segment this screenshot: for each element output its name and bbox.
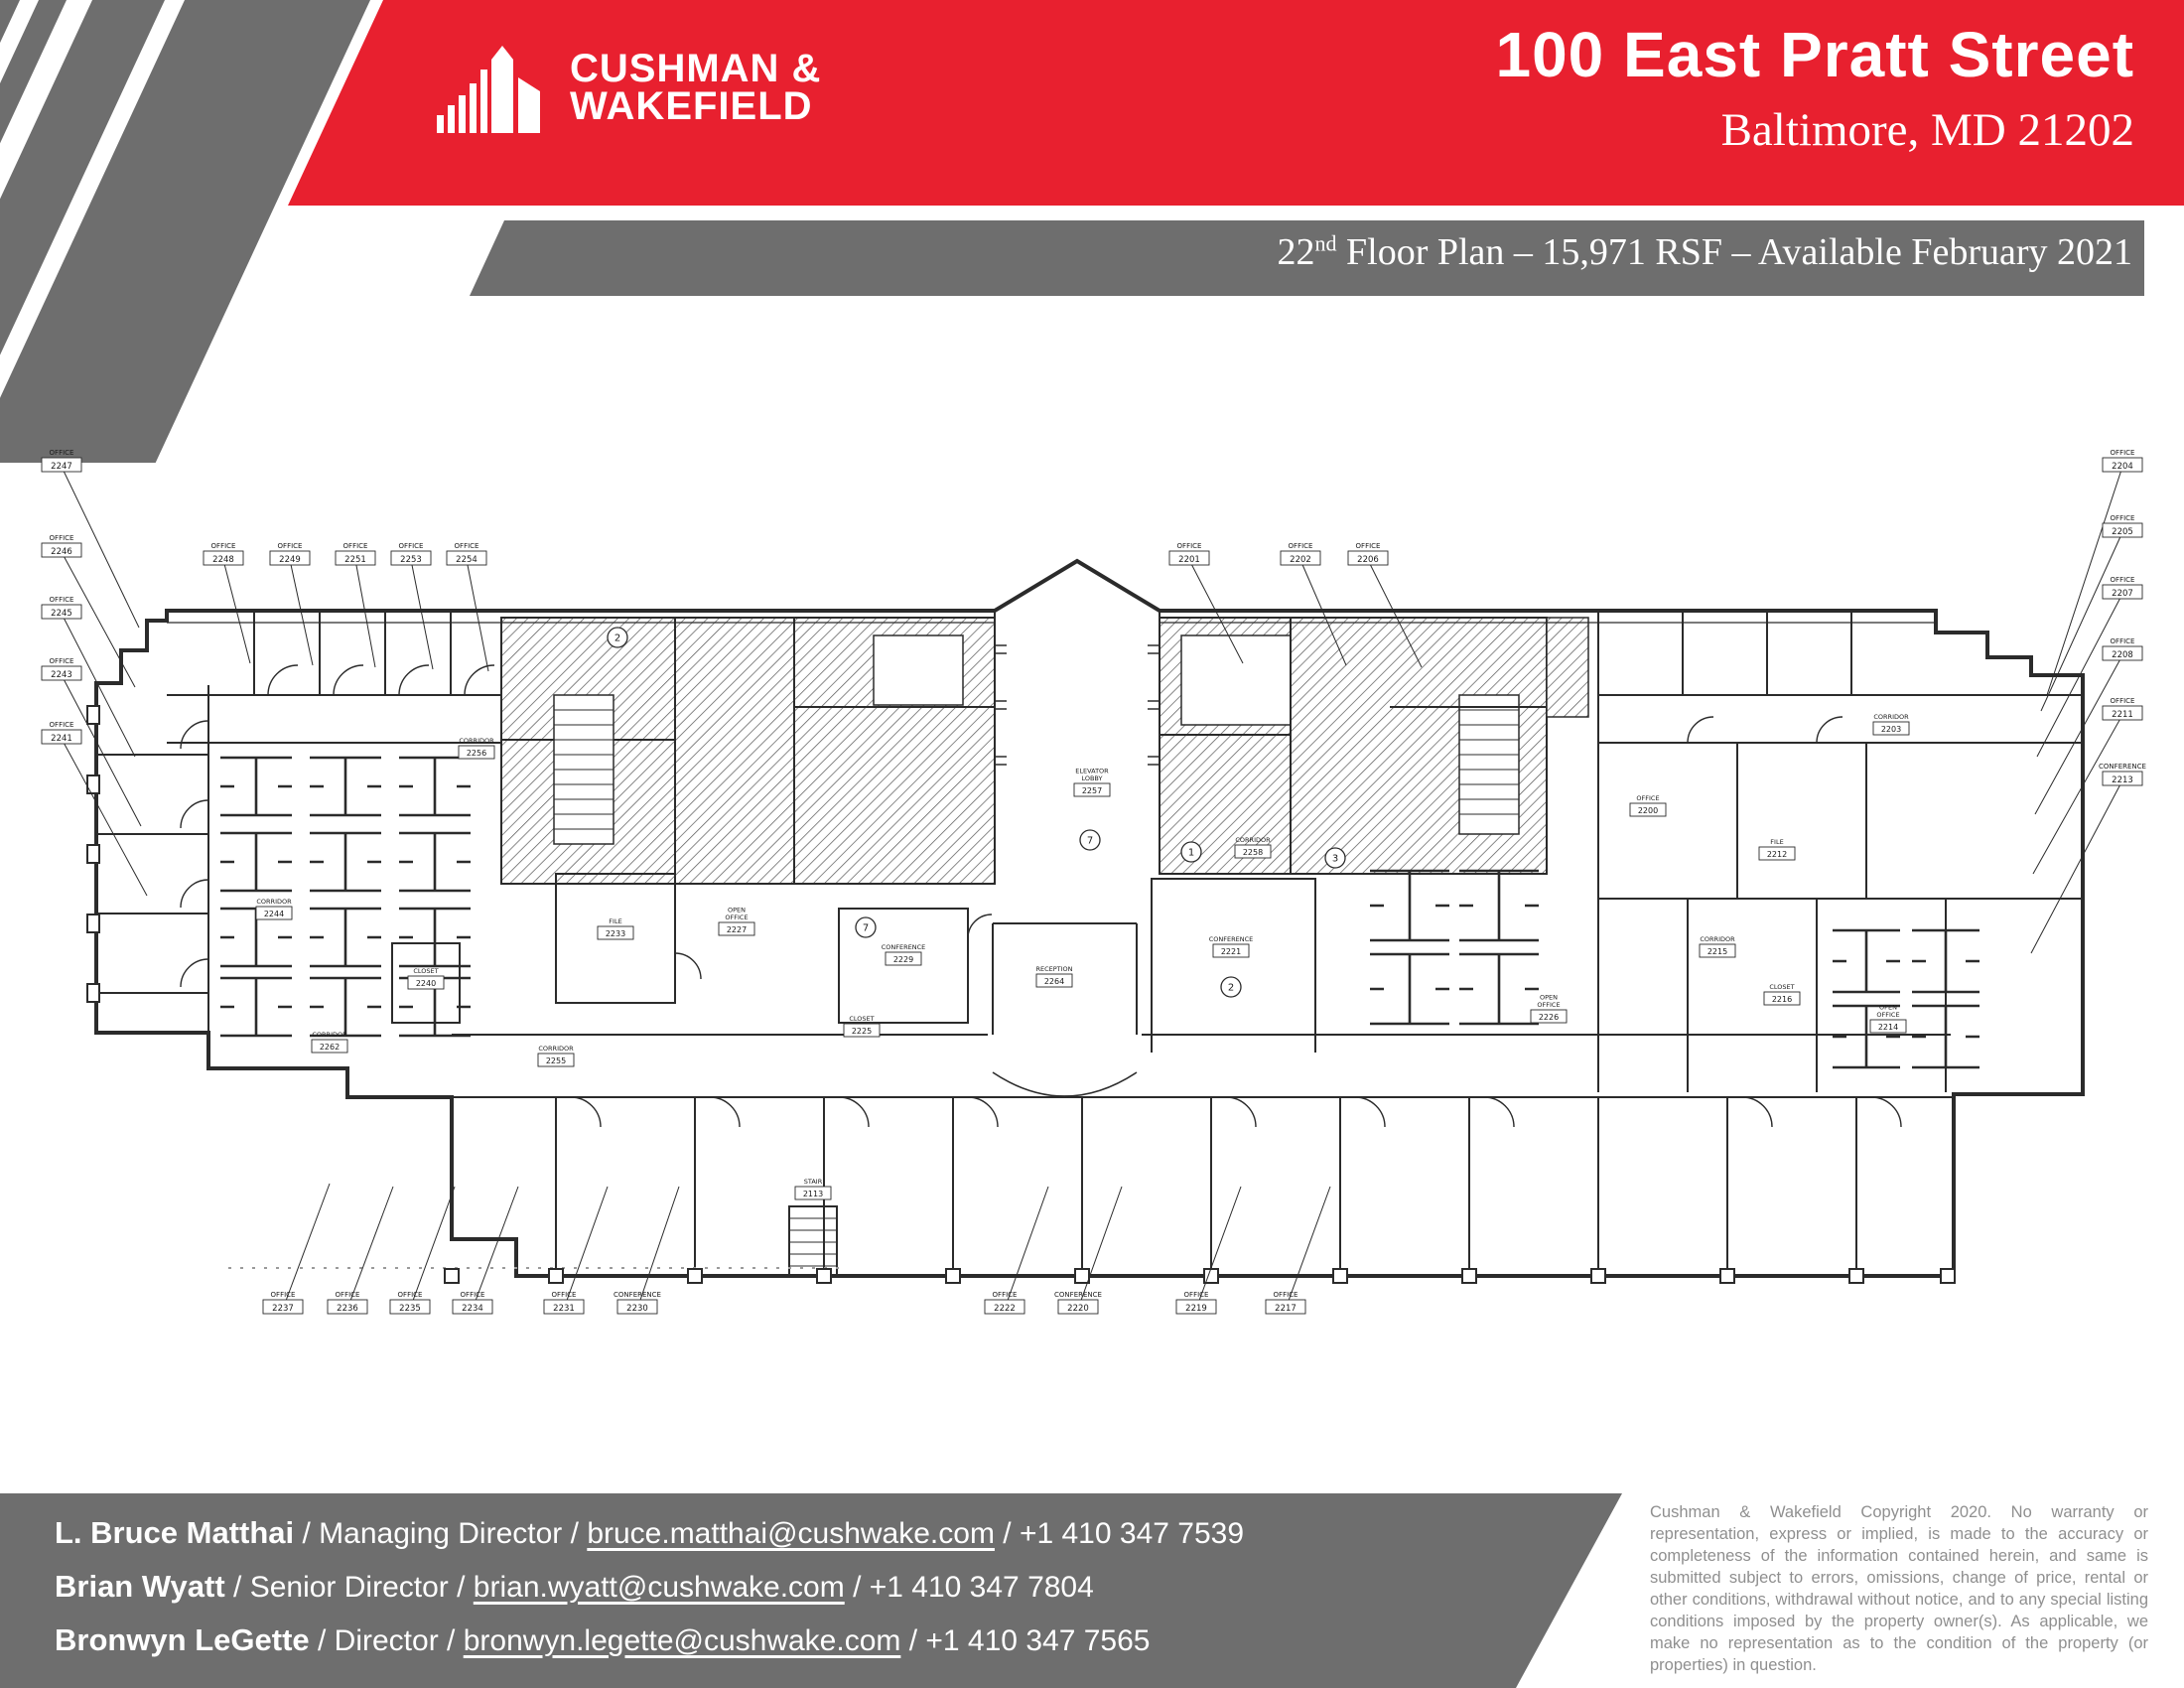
column-square bbox=[87, 845, 99, 863]
room-label-exterior: OFFICE2234 bbox=[453, 1187, 518, 1314]
room-label-interior: OPENOFFICE2214 bbox=[1870, 1004, 1906, 1034]
room-label-interior: CORRIDOR2258 bbox=[1235, 836, 1271, 858]
svg-text:OFFICE: OFFICE bbox=[398, 1291, 423, 1299]
svg-text:CORRIDOR: CORRIDOR bbox=[256, 898, 292, 906]
svg-text:2245: 2245 bbox=[51, 609, 72, 619]
room-label-interior: CLOSET2216 bbox=[1764, 983, 1800, 1005]
svg-text:OFFICE: OFFICE bbox=[50, 596, 74, 604]
room-labels: OFFICE2248OFFICE2249OFFICE2251OFFICE2253… bbox=[42, 449, 2146, 1314]
svg-text:CONFERENCE: CONFERENCE bbox=[1054, 1291, 1102, 1299]
separator: / bbox=[845, 1571, 870, 1604]
svg-text:2204: 2204 bbox=[2112, 462, 2133, 472]
svg-text:2243: 2243 bbox=[51, 670, 72, 680]
separator: / bbox=[310, 1624, 335, 1657]
svg-text:2202: 2202 bbox=[1290, 555, 1311, 565]
column-square bbox=[946, 1269, 960, 1283]
svg-text:FILE: FILE bbox=[609, 917, 621, 925]
separator: / bbox=[562, 1517, 587, 1550]
room-label-exterior: CONFERENCE2230 bbox=[614, 1187, 679, 1314]
svg-text:2212: 2212 bbox=[1767, 850, 1787, 859]
svg-text:2251: 2251 bbox=[344, 555, 366, 565]
workstation-clusters bbox=[220, 758, 1979, 1067]
svg-text:2230: 2230 bbox=[626, 1304, 648, 1314]
svg-text:OFFICE: OFFICE bbox=[2111, 449, 2135, 457]
svg-text:OFFICE: OFFICE bbox=[725, 914, 748, 921]
svg-text:CORRIDOR: CORRIDOR bbox=[1235, 836, 1271, 844]
column-square bbox=[1849, 1269, 1863, 1283]
svg-text:2258: 2258 bbox=[1243, 848, 1263, 857]
svg-text:OFFICE: OFFICE bbox=[50, 721, 74, 729]
svg-text:2: 2 bbox=[614, 633, 620, 644]
room-label-interior: OPENOFFICE2226 bbox=[1531, 994, 1567, 1024]
svg-text:OFFICE: OFFICE bbox=[1184, 1291, 1209, 1299]
room-label-exterior: OFFICE2254 bbox=[447, 542, 488, 671]
svg-text:OFFICE: OFFICE bbox=[1876, 1011, 1899, 1019]
note-circle: 3 bbox=[1325, 848, 1345, 868]
svg-text:2241: 2241 bbox=[51, 734, 72, 744]
footer-contact-band: L. Bruce Matthai / Managing Director / b… bbox=[0, 1493, 1622, 1688]
column-square bbox=[1333, 1269, 1347, 1283]
svg-text:2217: 2217 bbox=[1275, 1304, 1297, 1314]
svg-text:2264: 2264 bbox=[1044, 977, 1064, 986]
room-label-exterior: OFFICE2205 bbox=[2041, 514, 2142, 711]
contact-name: Brian Wyatt bbox=[55, 1569, 225, 1604]
column-square bbox=[87, 706, 99, 724]
room-label-interior: CONFERENCE2221 bbox=[1209, 935, 1254, 957]
svg-text:2208: 2208 bbox=[2112, 650, 2133, 660]
room-label-exterior: OFFICE2248 bbox=[204, 542, 250, 663]
separator: / bbox=[449, 1571, 474, 1604]
svg-text:2216: 2216 bbox=[1772, 995, 1792, 1004]
room-label-exterior: OFFICE2217 bbox=[1266, 1187, 1330, 1314]
svg-text:OFFICE: OFFICE bbox=[1636, 794, 1659, 802]
svg-text:OFFICE: OFFICE bbox=[1537, 1001, 1560, 1009]
separator: / bbox=[995, 1517, 1020, 1550]
svg-text:OFFICE: OFFICE bbox=[993, 1291, 1018, 1299]
column-square bbox=[1591, 1269, 1605, 1283]
column-square bbox=[549, 1269, 563, 1283]
room-label-exterior: OFFICE2219 bbox=[1176, 1187, 1241, 1314]
separator: / bbox=[225, 1571, 250, 1604]
svg-text:2247: 2247 bbox=[51, 462, 72, 472]
room-label-exterior: OFFICE2251 bbox=[336, 542, 375, 667]
svg-text:7: 7 bbox=[1087, 836, 1093, 847]
room-label-interior: CORRIDOR2256 bbox=[459, 737, 494, 759]
room-label-exterior: OFFICE2208 bbox=[2035, 637, 2142, 814]
svg-text:2229: 2229 bbox=[893, 955, 913, 964]
svg-text:OFFICE: OFFICE bbox=[1289, 542, 1313, 550]
hatched-core-zones bbox=[501, 618, 1588, 884]
svg-text:2240: 2240 bbox=[416, 979, 436, 988]
svg-text:OFFICE: OFFICE bbox=[336, 1291, 360, 1299]
column-square bbox=[87, 914, 99, 932]
room-label-interior: STAIR2113 bbox=[795, 1178, 831, 1199]
svg-text:CORRIDOR: CORRIDOR bbox=[538, 1045, 574, 1053]
svg-text:2211: 2211 bbox=[2112, 710, 2133, 720]
room-label-exterior: CONFERENCE2213 bbox=[2031, 763, 2146, 953]
svg-text:OFFICE: OFFICE bbox=[1356, 542, 1381, 550]
column-square bbox=[1720, 1269, 1734, 1283]
svg-text:OFFICE: OFFICE bbox=[211, 542, 236, 550]
svg-text:2231: 2231 bbox=[553, 1304, 575, 1314]
svg-text:2257: 2257 bbox=[1082, 786, 1102, 795]
contact-name: Bronwyn LeGette bbox=[55, 1622, 310, 1657]
room-label-interior: CORRIDOR2244 bbox=[256, 898, 292, 919]
column-squares bbox=[87, 706, 1955, 1283]
svg-text:2219: 2219 bbox=[1185, 1304, 1207, 1314]
svg-text:OFFICE: OFFICE bbox=[399, 542, 424, 550]
contact-role: Senior Director bbox=[250, 1571, 449, 1604]
svg-text:7: 7 bbox=[863, 923, 869, 934]
svg-text:2220: 2220 bbox=[1067, 1304, 1089, 1314]
svg-text:LOBBY: LOBBY bbox=[1081, 774, 1102, 782]
contact-row: L. Bruce Matthai / Managing Director / b… bbox=[55, 1515, 1244, 1551]
svg-text:2253: 2253 bbox=[400, 555, 422, 565]
room-label-exterior: OFFICE2231 bbox=[544, 1187, 608, 1314]
svg-text:2233: 2233 bbox=[606, 929, 625, 938]
room-label-exterior: OFFICE2236 bbox=[328, 1187, 393, 1314]
svg-text:CONFERENCE: CONFERENCE bbox=[882, 943, 926, 951]
svg-text:2213: 2213 bbox=[2112, 775, 2133, 785]
column-square bbox=[87, 775, 99, 793]
copyright-disclaimer: Cushman & Wakefield Copyright 2020. No w… bbox=[1650, 1501, 2148, 1676]
room-label-interior: OFFICE2200 bbox=[1630, 794, 1666, 816]
svg-text:OFFICE: OFFICE bbox=[50, 449, 74, 457]
room-label-exterior: OFFICE2249 bbox=[270, 542, 313, 665]
room-label-interior: CORRIDOR2215 bbox=[1700, 935, 1735, 957]
contact-row: Brian Wyatt / Senior Director / brian.wy… bbox=[55, 1569, 1094, 1605]
column-square bbox=[1462, 1269, 1476, 1283]
room-label-interior: CORRIDOR2203 bbox=[1873, 713, 1909, 735]
contact-phone: +1 410 347 7565 bbox=[925, 1624, 1150, 1657]
door-arcs bbox=[181, 665, 1901, 1127]
column-square bbox=[1075, 1269, 1089, 1283]
room-label-interior: CORRIDOR2255 bbox=[538, 1045, 574, 1066]
svg-text:STAIR: STAIR bbox=[804, 1178, 823, 1186]
room-label-interior: RECEPTION2264 bbox=[1035, 965, 1072, 987]
contact-role: Managing Director bbox=[319, 1517, 562, 1550]
svg-text:2203: 2203 bbox=[1881, 725, 1901, 734]
svg-text:CORRIDOR: CORRIDOR bbox=[1873, 713, 1909, 721]
room-label-interior: FILE2212 bbox=[1759, 838, 1795, 860]
column-square bbox=[1941, 1269, 1955, 1283]
svg-text:2254: 2254 bbox=[456, 555, 478, 565]
svg-text:CONFERENCE: CONFERENCE bbox=[614, 1291, 661, 1299]
note-circle: 7 bbox=[1080, 830, 1100, 850]
svg-text:CORRIDOR: CORRIDOR bbox=[459, 737, 494, 745]
flyer-page: CUSHMAN & WAKEFIELD 100 East Pratt Stree… bbox=[0, 0, 2184, 1688]
svg-text:FILE: FILE bbox=[1770, 838, 1783, 846]
svg-text:CLOSET: CLOSET bbox=[849, 1015, 874, 1023]
svg-text:2225: 2225 bbox=[852, 1027, 872, 1036]
svg-text:OFFICE: OFFICE bbox=[1177, 542, 1202, 550]
contact-phone: +1 410 347 7804 bbox=[870, 1571, 1094, 1604]
svg-text:OFFICE: OFFICE bbox=[2111, 514, 2135, 522]
svg-text:RECEPTION: RECEPTION bbox=[1035, 965, 1072, 973]
svg-text:2113: 2113 bbox=[803, 1190, 823, 1198]
svg-text:CONFERENCE: CONFERENCE bbox=[2099, 763, 2146, 771]
svg-text:2226: 2226 bbox=[1539, 1013, 1559, 1022]
svg-text:2236: 2236 bbox=[337, 1304, 358, 1314]
room-label-interior: CORRIDOR2262 bbox=[312, 1031, 347, 1053]
separator: / bbox=[439, 1624, 464, 1657]
svg-text:2206: 2206 bbox=[1357, 555, 1379, 565]
contact-role: Director bbox=[335, 1624, 439, 1657]
contact-phone: +1 410 347 7539 bbox=[1020, 1517, 1244, 1550]
svg-text:OFFICE: OFFICE bbox=[2111, 576, 2135, 584]
contact-email[interactable]: bruce.matthai@cushwake.com bbox=[587, 1517, 995, 1550]
room-label-exterior: OFFICE2253 bbox=[391, 542, 433, 669]
svg-text:2205: 2205 bbox=[2112, 527, 2133, 537]
svg-text:2246: 2246 bbox=[51, 547, 72, 557]
svg-text:2244: 2244 bbox=[264, 910, 284, 918]
svg-text:CLOSET: CLOSET bbox=[1769, 983, 1794, 991]
column-square bbox=[87, 984, 99, 1002]
svg-text:CORRIDOR: CORRIDOR bbox=[312, 1031, 347, 1039]
svg-text:2215: 2215 bbox=[1707, 947, 1727, 956]
svg-text:2234: 2234 bbox=[462, 1304, 483, 1314]
svg-text:OFFICE: OFFICE bbox=[455, 542, 479, 550]
svg-text:OFFICE: OFFICE bbox=[552, 1291, 577, 1299]
svg-text:CONFERENCE: CONFERENCE bbox=[1209, 935, 1254, 943]
svg-text:OFFICE: OFFICE bbox=[461, 1291, 485, 1299]
svg-text:OFFICE: OFFICE bbox=[1274, 1291, 1298, 1299]
column-square bbox=[817, 1269, 831, 1283]
svg-text:1: 1 bbox=[1188, 848, 1194, 859]
svg-text:OFFICE: OFFICE bbox=[343, 542, 368, 550]
interior-walls bbox=[96, 611, 2083, 1276]
svg-text:OFFICE: OFFICE bbox=[2111, 697, 2135, 705]
separator: / bbox=[900, 1624, 925, 1657]
column-square bbox=[688, 1269, 702, 1283]
svg-text:2262: 2262 bbox=[320, 1043, 340, 1052]
room-label-exterior: OFFICE2222 bbox=[985, 1187, 1048, 1314]
room-label-interior: CLOSET2225 bbox=[844, 1015, 880, 1037]
contact-row: Bronwyn LeGette / Director / bronwyn.leg… bbox=[55, 1622, 1150, 1658]
svg-text:2200: 2200 bbox=[1638, 806, 1658, 815]
svg-text:2221: 2221 bbox=[1221, 947, 1241, 956]
building-outline bbox=[96, 561, 2083, 1276]
contact-email[interactable]: bronwyn.legette@cushwake.com bbox=[464, 1624, 901, 1657]
svg-text:2222: 2222 bbox=[994, 1304, 1016, 1314]
note-circle: 7 bbox=[856, 917, 876, 937]
room-label-exterior: OFFICE2237 bbox=[263, 1184, 330, 1314]
room-label-interior: CLOSET2240 bbox=[408, 967, 444, 989]
svg-text:2237: 2237 bbox=[272, 1304, 294, 1314]
contact-name: L. Bruce Matthai bbox=[55, 1515, 294, 1550]
svg-text:2207: 2207 bbox=[2112, 589, 2133, 599]
svg-text:OFFICE: OFFICE bbox=[50, 534, 74, 542]
svg-text:CLOSET: CLOSET bbox=[413, 967, 438, 975]
note-circle: 2 bbox=[608, 628, 627, 647]
svg-text:2: 2 bbox=[1228, 983, 1234, 994]
svg-text:2201: 2201 bbox=[1178, 555, 1200, 565]
floor-plan-drawing: OFFICE2248OFFICE2249OFFICE2251OFFICE2253… bbox=[0, 0, 2184, 1688]
svg-text:2214: 2214 bbox=[1878, 1023, 1898, 1032]
svg-text:CORRIDOR: CORRIDOR bbox=[1700, 935, 1735, 943]
svg-text:2227: 2227 bbox=[727, 925, 747, 934]
svg-text:OFFICE: OFFICE bbox=[278, 542, 303, 550]
room-label-interior: OPENOFFICE2227 bbox=[719, 907, 754, 936]
column-square bbox=[445, 1269, 459, 1283]
note-circle: 1 bbox=[1181, 842, 1201, 862]
room-label-interior: FILE2233 bbox=[598, 917, 633, 939]
room-label-interior: ELEVATORLOBBY2257 bbox=[1074, 768, 1110, 797]
svg-text:OFFICE: OFFICE bbox=[2111, 637, 2135, 645]
svg-text:2249: 2249 bbox=[279, 555, 301, 565]
note-circle: 2 bbox=[1221, 977, 1241, 997]
room-label-exterior: OFFICE2235 bbox=[390, 1187, 455, 1314]
svg-text:2256: 2256 bbox=[467, 749, 486, 758]
svg-text:2248: 2248 bbox=[212, 555, 234, 565]
svg-text:OFFICE: OFFICE bbox=[50, 657, 74, 665]
contact-email[interactable]: brian.wyatt@cushwake.com bbox=[474, 1571, 845, 1604]
room-label-interior: CONFERENCE2229 bbox=[882, 943, 926, 965]
svg-text:2235: 2235 bbox=[399, 1304, 421, 1314]
separator: / bbox=[294, 1517, 319, 1550]
svg-text:2255: 2255 bbox=[546, 1056, 566, 1065]
room-label-exterior: CONFERENCE2220 bbox=[1054, 1187, 1122, 1314]
svg-text:3: 3 bbox=[1332, 854, 1338, 865]
svg-text:OFFICE: OFFICE bbox=[271, 1291, 296, 1299]
